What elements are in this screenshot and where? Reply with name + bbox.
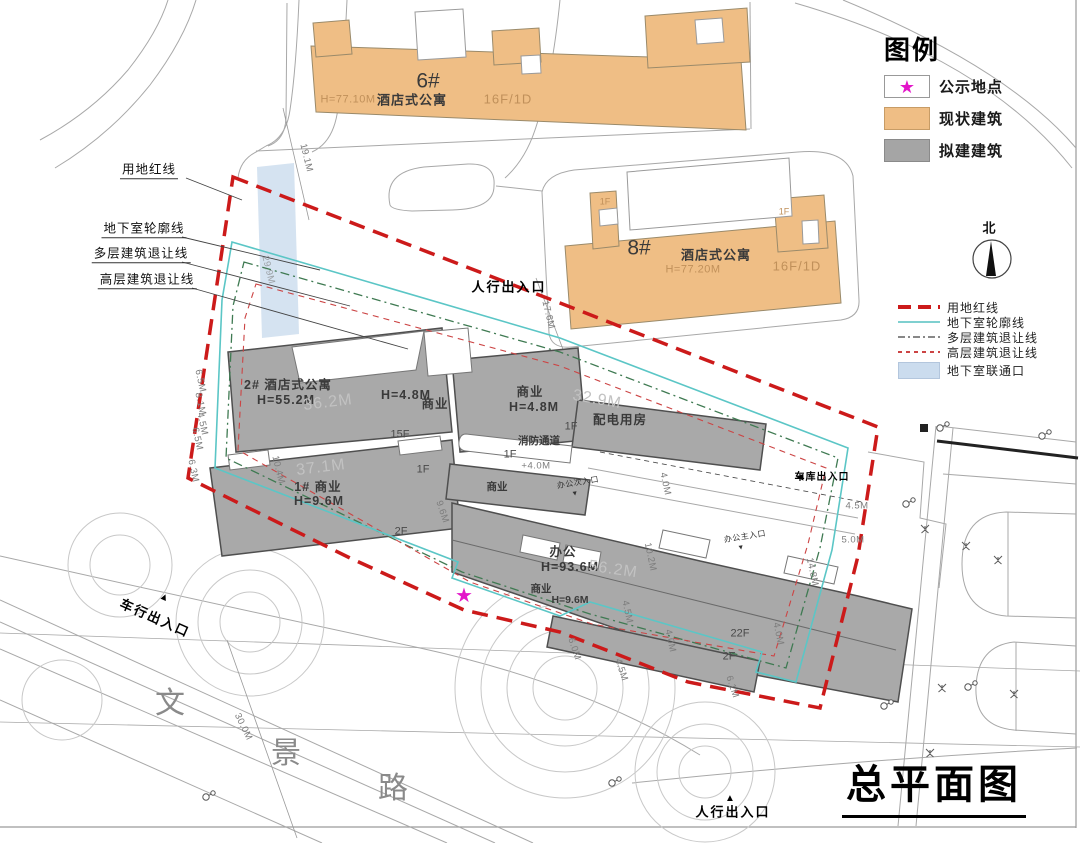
line-legend-row-red-line: 用地红线	[898, 301, 1078, 313]
trees	[921, 525, 1018, 757]
legend-item-proposed-building: 拟建建筑	[884, 139, 1074, 162]
building-power-room	[572, 400, 766, 470]
existing-building-courtyards	[415, 9, 819, 244]
line-legend-row-highrise-setback: 高层建筑退让线	[898, 346, 1078, 358]
line-legend-label: 高层建筑退让线	[947, 344, 1038, 361]
building-6-wing	[313, 20, 352, 57]
legend-title: 图例	[884, 30, 1074, 67]
existing-building-swatch	[884, 107, 930, 130]
blue-fill-sample	[898, 362, 940, 379]
proposed-buildings	[210, 328, 912, 702]
legend-item-label: 现状建筑	[939, 108, 1003, 129]
line-legend-row-basement-outline: 地下室轮廓线	[898, 316, 1078, 328]
legend-item-public-notice: ★ 公示地点	[884, 75, 1074, 98]
drawing-title: 总平面图	[842, 752, 1026, 818]
line-legend-row-basement-connector: 地下室联通口	[898, 361, 1078, 380]
wall-post	[920, 424, 928, 432]
wall-line	[937, 441, 1078, 458]
red-dash-sample	[898, 305, 940, 309]
line-legend-row-multistorey-setback: 多层建筑退让线	[898, 331, 1078, 343]
legend-item-existing-building: 现状建筑	[884, 107, 1074, 130]
north-compass	[973, 240, 1011, 278]
cyan-line-sample	[898, 321, 940, 323]
star-icon: ★	[899, 78, 915, 96]
legend: 图例 ★ 公示地点 现状建筑 拟建建筑	[884, 30, 1074, 171]
line-legend: 用地红线 地下室轮廓线 多层建筑退让线 高层建筑退让线 地下室联通口	[898, 301, 1078, 383]
red-finedash-sample	[898, 351, 940, 353]
public-notice-swatch: ★	[884, 75, 930, 98]
proposed-building-swatch	[884, 139, 930, 162]
legend-item-label: 拟建建筑	[939, 140, 1003, 161]
site-plan-canvas: 用地红线地下室轮廓线多层建筑退让线高层建筑退让线人行出入口人行出入口▲车行出入口…	[0, 0, 1080, 843]
gray-dashdot-sample	[898, 336, 940, 338]
legend-item-label: 公示地点	[939, 76, 1003, 97]
line-legend-label: 地下室联通口	[947, 362, 1025, 379]
